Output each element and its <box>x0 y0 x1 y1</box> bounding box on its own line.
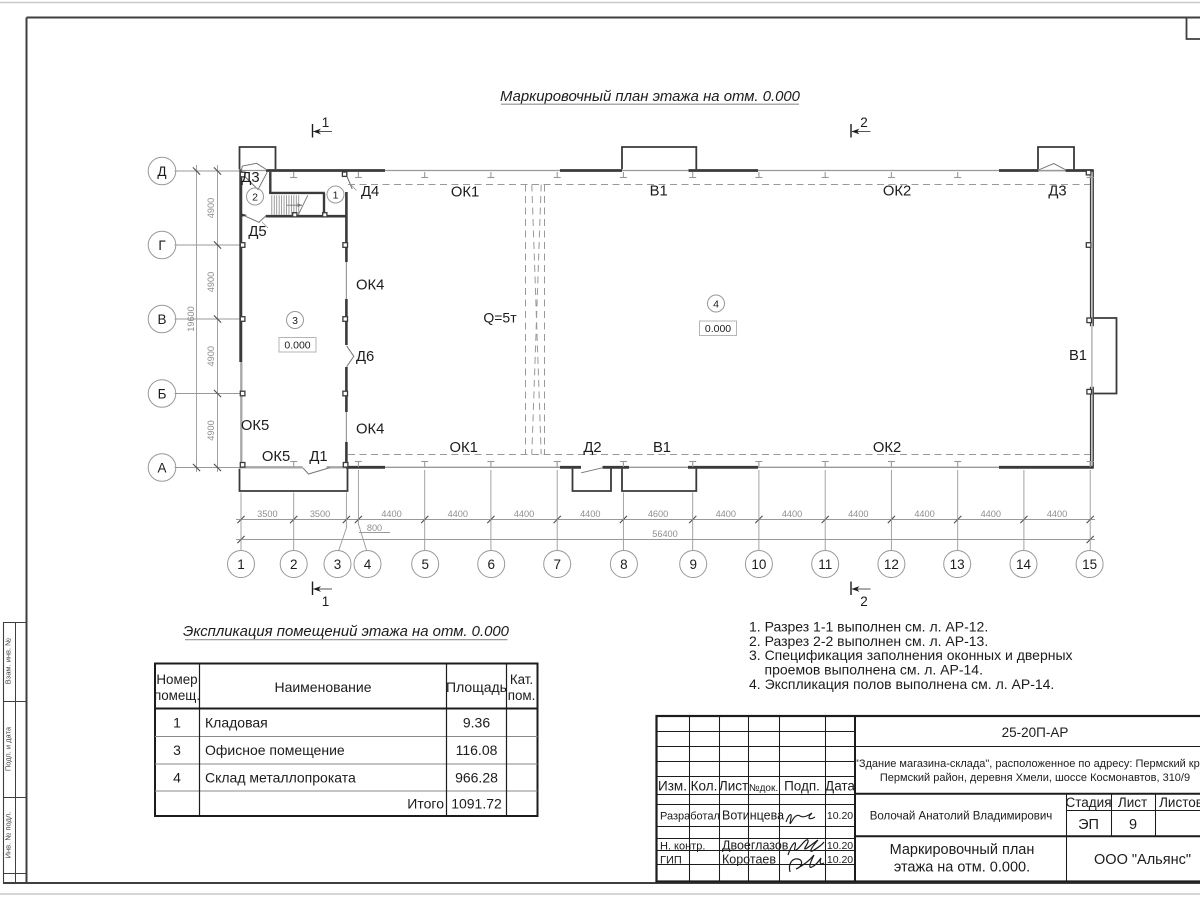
svg-text:3500: 3500 <box>257 509 277 519</box>
svg-text:1: 1 <box>322 115 330 130</box>
svg-text:В: В <box>157 312 166 327</box>
svg-text:ОК2: ОК2 <box>883 184 911 200</box>
svg-text:Д3: Д3 <box>241 170 259 186</box>
svg-text:800: 800 <box>367 523 382 533</box>
svg-text:Взам. инв. №: Взам. инв. № <box>4 638 13 684</box>
svg-text:Н. контр.: Н. контр. <box>660 841 705 853</box>
svg-text:4400: 4400 <box>381 509 401 519</box>
svg-text:Офисное помещение: Офисное помещение <box>205 742 345 758</box>
svg-text:Маркировочный план этажа на от: Маркировочный план этажа на отм. 0.000 <box>500 89 801 105</box>
svg-text:4600: 4600 <box>648 509 668 519</box>
svg-text:Кладовая: Кладовая <box>205 715 268 731</box>
svg-text:56400: 56400 <box>652 529 678 539</box>
svg-text:Площадь: Площадь <box>446 679 507 695</box>
svg-text:3500: 3500 <box>310 509 330 519</box>
svg-text:2: 2 <box>252 191 258 203</box>
svg-text:19600: 19600 <box>186 306 196 332</box>
svg-text:ОК4: ОК4 <box>356 422 384 438</box>
svg-text:6: 6 <box>487 557 495 572</box>
svg-text:ОК1: ОК1 <box>451 185 479 201</box>
svg-text:В1: В1 <box>653 440 671 456</box>
svg-text:Инв. № подл.: Инв. № подл. <box>4 812 13 859</box>
svg-text:Вотинцева: Вотинцева <box>722 809 784 823</box>
svg-text:9: 9 <box>1129 817 1137 833</box>
svg-text:7: 7 <box>553 557 561 572</box>
svg-text:1: 1 <box>173 715 181 731</box>
svg-text:ОК1: ОК1 <box>450 440 478 456</box>
svg-text:13: 13 <box>950 557 965 572</box>
svg-text:Экспликация помещений этажа на: Экспликация помещений этажа на отм. 0.00… <box>183 624 510 640</box>
svg-text:4400: 4400 <box>580 509 600 519</box>
svg-text:4900: 4900 <box>206 272 216 292</box>
svg-text:4900: 4900 <box>206 198 216 218</box>
svg-text:Д6: Д6 <box>356 349 374 365</box>
svg-text:"Здание магазина-склада", расп: "Здание магазина-склада", расположенное … <box>855 758 1200 770</box>
svg-text:2: 2 <box>290 557 298 572</box>
svg-text:пом.: пом. <box>508 688 536 703</box>
svg-text:ОК4: ОК4 <box>356 278 384 294</box>
svg-text:4400: 4400 <box>1047 509 1067 519</box>
svg-text:1: 1 <box>237 557 245 572</box>
svg-text:1: 1 <box>333 189 339 201</box>
svg-text:Маркировочный план: Маркировочный план <box>890 842 1035 858</box>
svg-text:ОК5: ОК5 <box>262 449 290 465</box>
svg-text:4. Экспликация полов выполнена: 4. Экспликация полов выполнена см. л. АР… <box>749 676 1054 692</box>
svg-text:Д4: Д4 <box>361 184 379 200</box>
svg-text:Д: Д <box>157 164 166 179</box>
svg-text:4400: 4400 <box>514 509 534 519</box>
svg-text:3: 3 <box>292 315 298 327</box>
svg-text:Дата: Дата <box>825 779 855 794</box>
svg-text:4400: 4400 <box>981 509 1001 519</box>
svg-text:4900: 4900 <box>206 346 216 366</box>
svg-text:25-20П-АР: 25-20П-АР <box>1002 725 1069 740</box>
svg-text:Подп.: Подп. <box>784 779 820 794</box>
svg-text:ЭП: ЭП <box>1078 817 1099 833</box>
svg-text:В1: В1 <box>1069 348 1087 364</box>
svg-text:Коротаев: Коротаев <box>722 853 776 867</box>
svg-text:4400: 4400 <box>448 509 468 519</box>
svg-text:Наименование: Наименование <box>274 679 371 695</box>
svg-text:14: 14 <box>1016 557 1032 572</box>
svg-text:Изм.: Изм. <box>658 779 687 794</box>
svg-text:116.08: 116.08 <box>456 742 498 758</box>
svg-text:Кат.: Кат. <box>510 672 533 687</box>
svg-text:9.36: 9.36 <box>463 715 490 731</box>
svg-text:4400: 4400 <box>848 509 868 519</box>
svg-text:Разработал: Разработал <box>660 811 720 823</box>
svg-text:0.000: 0.000 <box>705 323 731 335</box>
svg-text:ООО "Альянс": ООО "Альянс" <box>1094 852 1191 868</box>
svg-text:Г: Г <box>158 238 166 253</box>
svg-text:9: 9 <box>689 557 697 572</box>
svg-text:Двоеглазов: Двоеглазов <box>722 839 789 853</box>
svg-text:5: 5 <box>421 557 429 572</box>
svg-text:Пермский район, деревня Хмели,: Пермский район, деревня Хмели, шоссе Кос… <box>880 772 1190 784</box>
svg-text:3: 3 <box>173 742 181 758</box>
svg-text:Подп. и дата: Подп. и дата <box>4 726 13 771</box>
svg-text:3: 3 <box>334 557 342 572</box>
svg-text:Стадия: Стадия <box>1065 795 1111 810</box>
svg-text:4400: 4400 <box>716 509 736 519</box>
svg-text:4400: 4400 <box>914 509 934 519</box>
svg-text:Д2: Д2 <box>583 440 601 456</box>
svg-text:Листов: Листов <box>1159 795 1200 810</box>
svg-text:12: 12 <box>884 557 899 572</box>
svg-text:ОК2: ОК2 <box>873 440 901 456</box>
svg-text:Д3: Д3 <box>1048 184 1066 200</box>
svg-text:0.000: 0.000 <box>284 339 310 351</box>
svg-text:10: 10 <box>751 557 766 572</box>
svg-text:А: А <box>157 460 166 475</box>
svg-text:10.20: 10.20 <box>827 854 853 866</box>
svg-text:4: 4 <box>173 769 181 785</box>
svg-text:Д5: Д5 <box>248 224 266 240</box>
svg-text:8: 8 <box>620 557 628 572</box>
svg-text:Склад металлопроката: Склад металлопроката <box>205 769 356 785</box>
svg-text:1: 1 <box>322 594 330 609</box>
svg-text:Q=5т: Q=5т <box>483 310 517 326</box>
svg-text:Кол.: Кол. <box>691 779 718 794</box>
svg-text:2: 2 <box>860 594 868 609</box>
svg-text:4: 4 <box>713 298 719 310</box>
svg-text:Лист: Лист <box>1118 795 1147 810</box>
svg-text:10.20: 10.20 <box>827 810 853 822</box>
svg-text:В1: В1 <box>650 184 668 200</box>
svg-text:этажа на отм. 0.000.: этажа на отм. 0.000. <box>894 860 1030 876</box>
svg-text:11: 11 <box>818 557 832 572</box>
svg-text:966.28: 966.28 <box>455 769 498 785</box>
svg-text:Лист: Лист <box>719 779 748 794</box>
svg-text:2: 2 <box>860 115 868 130</box>
svg-text:4900: 4900 <box>206 420 216 440</box>
svg-text:помещ.: помещ. <box>154 688 200 703</box>
svg-text:Итого: Итого <box>407 796 444 812</box>
svg-text:4400: 4400 <box>782 509 802 519</box>
svg-text:15: 15 <box>1082 557 1097 572</box>
svg-text:4: 4 <box>364 557 372 572</box>
svg-text:Б: Б <box>158 386 167 401</box>
svg-text:ГИП: ГИП <box>660 855 682 867</box>
svg-text:10.20: 10.20 <box>827 840 853 852</box>
svg-text:Волочай Анатолий Владимирович: Волочай Анатолий Владимирович <box>870 811 1053 823</box>
svg-text:Д1: Д1 <box>309 449 327 465</box>
svg-text:ОК5: ОК5 <box>241 418 269 434</box>
svg-text:№док.: №док. <box>749 783 778 794</box>
svg-text:Номер: Номер <box>156 672 197 687</box>
svg-text:1091.72: 1091.72 <box>451 796 502 812</box>
